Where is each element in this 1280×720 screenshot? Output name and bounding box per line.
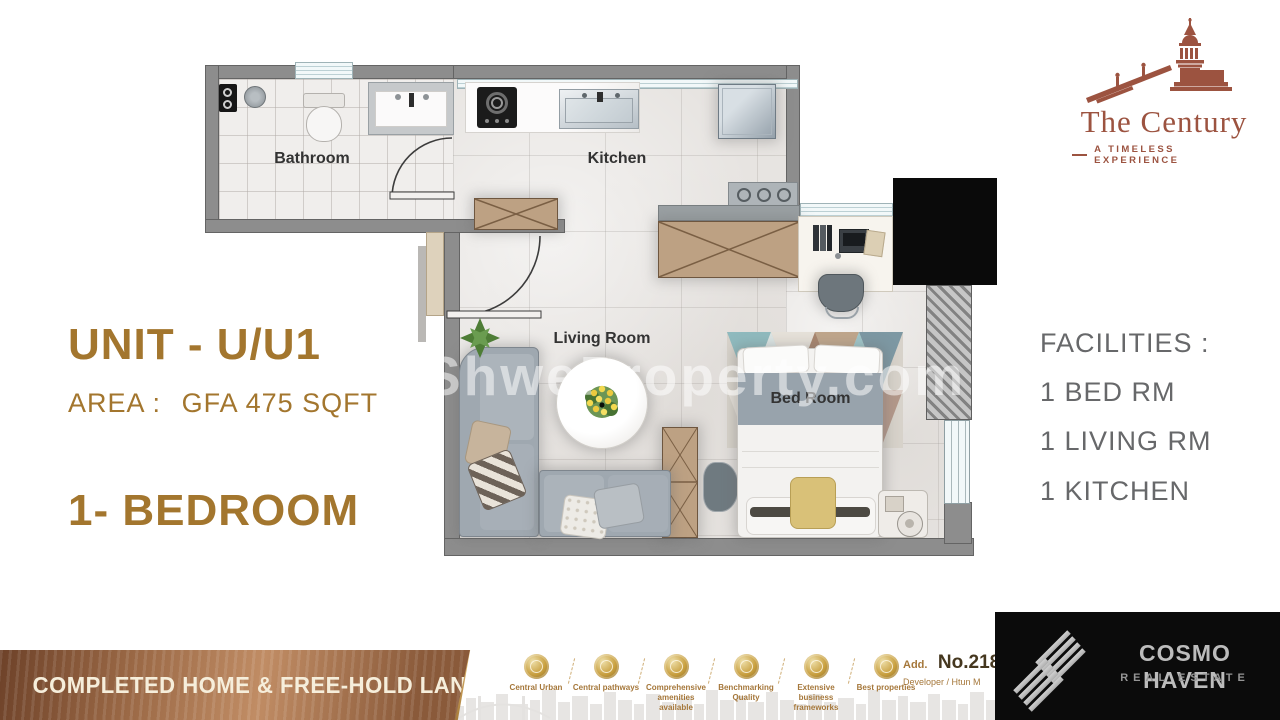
exterior-ledge: [418, 246, 426, 342]
room-label-bathroom: Bathroom: [262, 150, 362, 168]
toilet-bowl: [306, 106, 342, 142]
cosmo-subtitle: REAL ESTATE: [1099, 672, 1271, 684]
fridge: [718, 84, 776, 139]
bottom-wall: [444, 538, 974, 556]
entry-cabinet: [474, 198, 558, 230]
feature-business: Extensive business frameworks: [782, 654, 850, 713]
feature-amenities: Comprehensive amenities available: [642, 654, 710, 713]
table-flowers: [578, 379, 626, 425]
books-icon: [813, 225, 819, 251]
tagline-dash: [1072, 154, 1087, 156]
entry-jamb: [426, 232, 444, 316]
papers: [863, 230, 885, 257]
washer-icon: [728, 182, 798, 207]
room-label-kitchen: Kitchen: [572, 150, 662, 168]
century-title: The Century: [1072, 104, 1256, 140]
area-value: GFA 475 SQFT: [182, 388, 379, 418]
bathroom-sink-counter: [368, 82, 454, 135]
bed: Bed Room: [737, 348, 883, 538]
promo-banner: COMPLETED HOME & FREE-HOLD LAND: [0, 650, 472, 720]
feature-central-pathways: Central pathways: [572, 654, 640, 713]
stove: [477, 87, 517, 128]
bedroom-right-wall: [944, 502, 972, 544]
mouse-icon: [835, 253, 841, 259]
kitchen-cabinet: [658, 221, 800, 278]
desk-chair: [818, 274, 864, 312]
bed-pillow-left: [742, 344, 809, 375]
century-tagline-row: A TIMELESS EXPERIENCE: [1072, 144, 1256, 166]
bed-yellow-cushion: [790, 477, 836, 529]
desk-window-band: [800, 203, 893, 217]
sofa-pillow-gray: [593, 482, 645, 529]
shower-valve-icon: [219, 84, 237, 112]
cosmo-haven-box: COSMO HAVEN REAL ESTATE: [995, 612, 1280, 720]
urban-coin-icon: [524, 654, 549, 679]
bathroom-window: [295, 62, 353, 79]
facility-item-living: 1 LIVING RM: [1040, 426, 1212, 457]
address-number: No.218: [938, 652, 1000, 673]
nightstand: [878, 490, 928, 538]
properties-coin-icon: [874, 654, 899, 679]
kitchen-sink: [559, 89, 639, 129]
hatched-wall: [926, 285, 972, 420]
room-label-living: Living Room: [542, 330, 662, 348]
area-row: AREA : GFA 475 SQFT: [68, 388, 378, 419]
facilities-heading: FACILITIES :: [1040, 328, 1210, 359]
century-logo: The Century A TIMELESS EXPERIENCE: [1072, 18, 1256, 160]
cosmo-name: COSMO HAVEN: [1099, 640, 1271, 694]
bed-pillow-right: [813, 344, 880, 375]
promo-banner-text: COMPLETED HOME & FREE-HOLD LAND: [0, 672, 483, 699]
features-row: Central Urban Central pathways Comprehen…: [502, 654, 920, 713]
century-building-icon: [1086, 18, 1246, 106]
stool: [703, 462, 739, 512]
facility-item-kitchen: 1 KITCHEN: [1040, 476, 1190, 507]
facility-item-bed: 1 BED RM: [1040, 377, 1176, 408]
kitchen-top-wall: [453, 65, 800, 79]
area-label: AREA :: [68, 388, 161, 418]
plant-icon: [460, 318, 500, 358]
redacted-block: [893, 178, 997, 285]
business-coin-icon: [804, 654, 829, 679]
counter-top-strip: [658, 205, 800, 221]
pathways-coin-icon: [594, 654, 619, 679]
amenities-coin-icon: [664, 654, 689, 679]
unit-type: 1- BEDROOM: [68, 486, 359, 536]
bathroom-left-wall: [205, 65, 219, 233]
quality-coin-icon: [734, 654, 759, 679]
flyer-canvas: Bed Room Bathroom Kitchen Living Room Sh…: [0, 0, 1280, 720]
bedroom-window: [944, 420, 970, 504]
bed-blanket-band: Bed Room: [738, 373, 883, 425]
lamp-icon: [897, 511, 923, 537]
shower-head: [244, 86, 266, 108]
feature-central-urban: Central Urban: [502, 654, 570, 713]
living-left-wall: [444, 232, 460, 542]
cosmo-logo-icon: [1007, 620, 1099, 716]
feature-quality: Benchmarking Quality: [712, 654, 780, 713]
century-tagline: A TIMELESS EXPERIENCE: [1094, 144, 1256, 166]
room-label-bedroom: Bed Room: [771, 390, 851, 408]
unit-title: UNIT - U/U1: [68, 320, 321, 370]
address-label: Add.: [903, 659, 927, 671]
